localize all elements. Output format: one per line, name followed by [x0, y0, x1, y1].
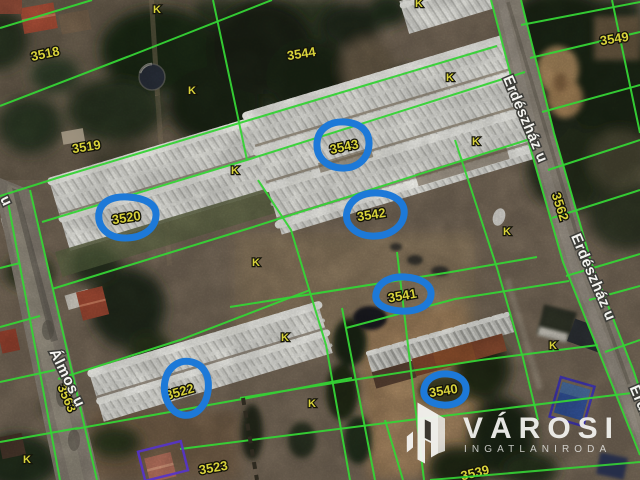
svg-text:K: K	[23, 454, 31, 466]
svg-text:K: K	[153, 4, 161, 16]
svg-text:K: K	[252, 257, 260, 269]
svg-text:K: K	[231, 165, 239, 177]
svg-text:K: K	[549, 340, 557, 352]
svg-text:K: K	[503, 226, 511, 238]
svg-text:K: K	[446, 72, 454, 84]
svg-text:INGATLANIRODA: INGATLANIRODA	[464, 444, 611, 455]
svg-text:K: K	[281, 332, 289, 344]
svg-text:K: K	[415, 0, 423, 10]
svg-text:K: K	[188, 85, 196, 97]
svg-text:K: K	[308, 398, 316, 410]
svg-text:K: K	[472, 136, 480, 148]
svg-text:VÁROSI: VÁROSI	[463, 411, 620, 445]
